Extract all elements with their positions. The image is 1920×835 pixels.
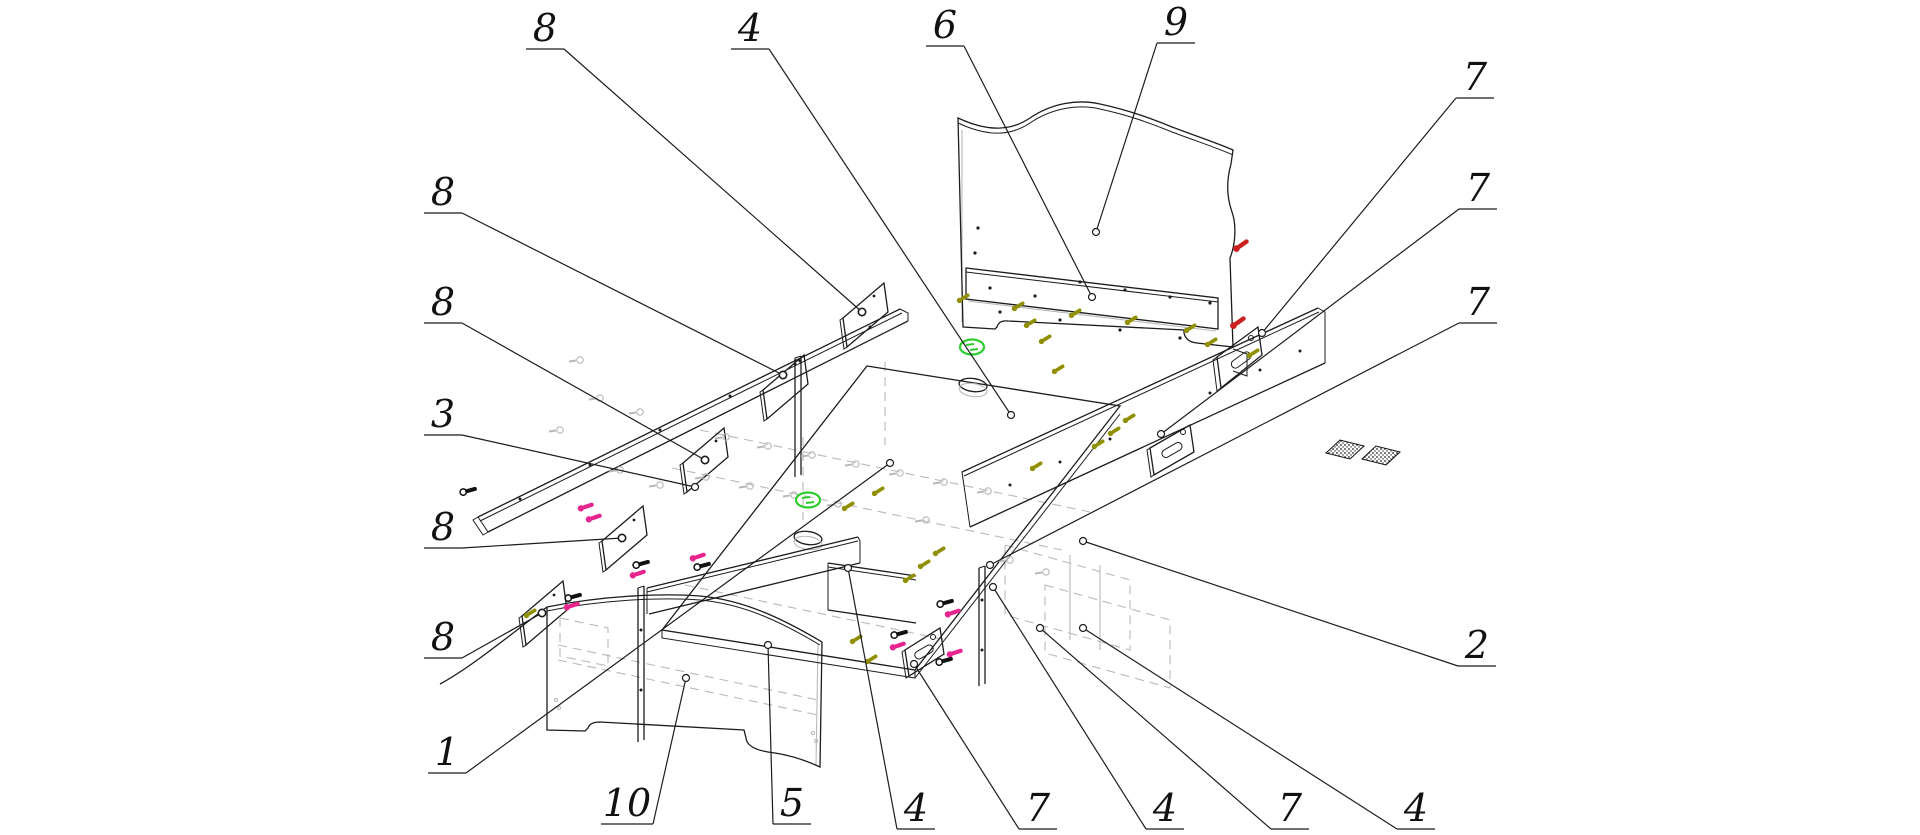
leader-target-marker [702, 457, 709, 464]
screw-olive-icon [1204, 336, 1219, 348]
screw-olive-icon [1038, 333, 1053, 345]
leader-target-marker [1259, 330, 1266, 337]
callout-2-7: 2 [1080, 538, 1497, 668]
cam-fitting-hidden-icon [915, 517, 929, 523]
part-number-label: 7 [1466, 280, 1491, 324]
leader-target-marker [1008, 412, 1015, 419]
leader-target-marker [911, 661, 918, 668]
screw-black-icon [459, 485, 477, 496]
part-number-label: 4 [903, 786, 928, 830]
cam-lock-green-icon [960, 340, 984, 355]
screw-black-icon [890, 628, 908, 639]
cam-fitting-hidden-icon [569, 357, 583, 363]
part-number-label: 5 [780, 781, 804, 825]
screw-olive-icon [956, 292, 971, 304]
leader-target-marker [887, 460, 894, 467]
leader-target-marker [987, 562, 994, 569]
callout-6-2: 6 [926, 3, 1096, 301]
callout-7-17: 7 [911, 661, 1058, 831]
part-number-label: 7 [1278, 786, 1303, 830]
leader-target-marker [539, 610, 546, 617]
leader-target-marker [1089, 294, 1096, 301]
hatched-pads [1326, 440, 1400, 465]
part-number-label: 7 [1463, 55, 1488, 99]
screw-magenta-icon [689, 551, 707, 562]
screw-magenta-icon [585, 512, 603, 523]
exploded-view-drawing: 8469777288388110547474 [0, 0, 1920, 835]
diagram-canvas: 8469777288388110547474 [0, 0, 1920, 835]
part-number-label: 4 [1152, 786, 1177, 830]
part-number-label: 9 [1164, 0, 1188, 44]
box-rails-and-dividers [638, 356, 985, 742]
leader-target-marker [1080, 625, 1087, 632]
leader-target-marker [619, 535, 626, 542]
leader-target-marker [683, 675, 690, 682]
tie-plate [1147, 425, 1194, 477]
screw-black-icon [632, 558, 650, 569]
part-number-label: 7 [1466, 166, 1491, 210]
screw-magenta-icon [944, 607, 962, 618]
cleat-bracket-row [519, 283, 888, 647]
screw-olive-icon [871, 485, 886, 497]
screw-black-icon [936, 597, 954, 608]
part-number-label: 8 [431, 280, 455, 324]
callout-7-5: 7 [1158, 166, 1498, 438]
part-number-label: 8 [431, 170, 455, 214]
callout-8-8: 8 [424, 170, 787, 379]
cam-fitting-hidden-icon [1035, 569, 1049, 575]
cam-fitting-hidden-icon [549, 427, 563, 433]
right-side-rail [962, 308, 1325, 527]
screw-black-icon [564, 591, 582, 602]
screw-magenta-icon [629, 568, 647, 579]
part-number-label: 10 [603, 781, 651, 825]
leader-target-marker [1158, 431, 1165, 438]
headboard-panel [958, 102, 1247, 376]
leader-target-marker [692, 484, 699, 491]
part-number-label: 2 [1464, 623, 1489, 667]
callout-8-0: 8 [526, 6, 866, 316]
callout-5-15: 5 [765, 642, 812, 826]
callout-4-16: 4 [845, 565, 936, 831]
leader-target-marker [780, 372, 787, 379]
footboard-panel [440, 595, 822, 767]
part-number-label: 8 [431, 615, 455, 659]
leader-target-marker [845, 565, 852, 572]
part-number-label: 6 [933, 3, 957, 47]
screw-olive-icon [1122, 412, 1137, 424]
screw-magenta-icon [889, 640, 907, 651]
screw-olive-icon [1051, 363, 1066, 375]
part-number-label: 1 [435, 730, 459, 774]
callout-9-3: 9 [1093, 0, 1196, 236]
screw-olive-icon [932, 545, 947, 557]
callout-10-14: 10 [601, 675, 690, 826]
screw-magenta-icon [946, 647, 964, 658]
screw-olive-icon [1023, 317, 1038, 329]
mattress-platform [662, 366, 1120, 678]
leader-target-marker [1037, 625, 1044, 632]
cleat-bracket [840, 283, 888, 349]
cam-fitting-hidden-icon [629, 409, 643, 415]
screw-magenta-icon [577, 501, 595, 512]
cam-fitting-hidden-icon [649, 482, 663, 488]
leader-target-marker [990, 584, 997, 591]
callout-8-11: 8 [424, 505, 626, 549]
callout-4-20: 4 [1080, 625, 1436, 831]
callout-4-1: 4 [731, 6, 1015, 419]
leader-target-marker [765, 642, 772, 649]
screw-olive-icon [917, 558, 932, 570]
part-number-label: 8 [533, 6, 557, 50]
part-number-label: 4 [737, 6, 762, 50]
leader-target-marker [1093, 229, 1100, 236]
part-number-label: 3 [431, 392, 455, 436]
part-number-label: 8 [431, 505, 455, 549]
leader-target-marker [859, 309, 866, 316]
screw-olive-icon [1107, 425, 1122, 437]
callout-7-4: 7 [1259, 55, 1495, 337]
part-number-label: 4 [1403, 786, 1428, 830]
leader-target-marker [1080, 538, 1087, 545]
screw-olive-icon [1029, 460, 1044, 472]
callout-4-18: 4 [990, 584, 1185, 831]
cam-lock-green-icon [796, 493, 820, 508]
part-number-label: 7 [1026, 786, 1051, 830]
